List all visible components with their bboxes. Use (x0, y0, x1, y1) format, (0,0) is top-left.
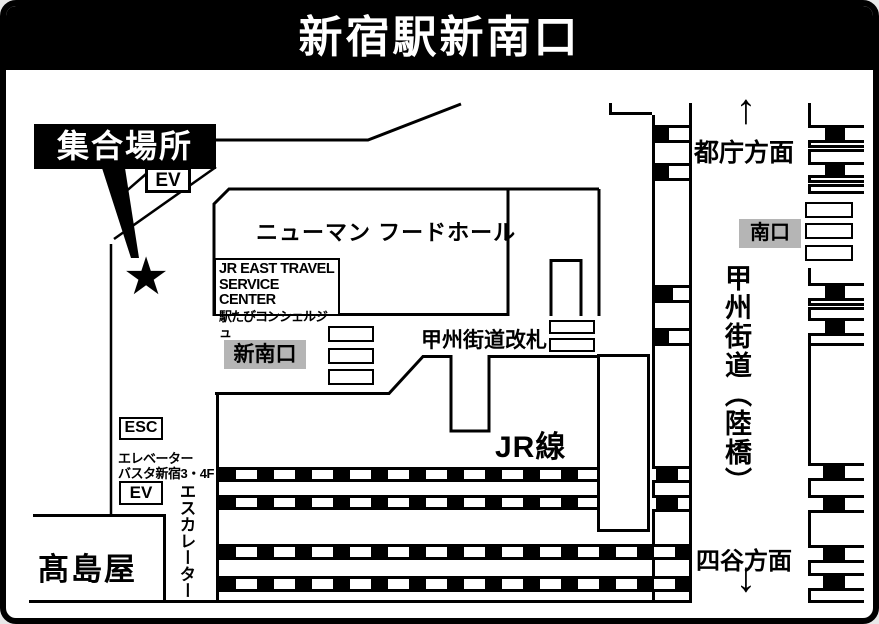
road-strip-segment (808, 283, 864, 301)
minami-exit-badge: 南口 (739, 219, 801, 248)
station-guide-map: 新宿駅新南口 集合場所 ★ EV ニューマン フードホール JR EAST TR… (0, 0, 879, 624)
overpass-rectangle (597, 354, 650, 532)
food-hall-label: ニューマン フードホール (256, 215, 516, 247)
road-strip-segment (652, 328, 689, 346)
road-strip-segment (808, 495, 864, 513)
title-bar: 新宿駅新南口 (6, 6, 873, 70)
meeting-place-label-box: 集合場所 (34, 124, 216, 169)
jr-track-band (219, 544, 689, 560)
road-strip-segment (808, 545, 864, 563)
road-strip-segment (808, 463, 864, 481)
ticket-gate (805, 223, 853, 239)
road-strip-segment (808, 318, 864, 336)
road-strip-segment (808, 303, 864, 310)
ticket-gate (328, 348, 374, 364)
road-strip-line (808, 343, 864, 346)
road-strip-segment (652, 125, 689, 143)
travel-center-line1: JR EAST TRAVEL (219, 262, 338, 278)
takashimaya-label: 髙島屋 (38, 544, 137, 589)
page-title: 新宿駅新南口 (6, 6, 873, 70)
meeting-point-star-icon: ★ (118, 246, 174, 308)
elevator-box-lower: EV (119, 481, 163, 505)
road-strip-line (808, 191, 864, 194)
ticket-gate (549, 338, 595, 352)
jr-line-label: JR線 (495, 422, 566, 466)
ticket-gate (328, 369, 374, 385)
travel-center-line3: 駅たびコンシェルジュ (219, 309, 338, 341)
escalator-vertical-label: エスカレーター (174, 483, 198, 605)
ticket-gate (805, 202, 853, 218)
road-strip-segment (652, 495, 689, 512)
road-strip-segment (808, 145, 864, 152)
koshu-kaido-gate-label: 甲州街道改札 (421, 324, 547, 354)
koshu-kaido-road-label: 甲州街道（陸橋） (717, 264, 756, 534)
road-strip-segment (808, 180, 864, 187)
ticket-gate (549, 320, 595, 334)
ticket-gate (805, 245, 853, 261)
jr-track-band (219, 467, 599, 482)
road-strip-segment (652, 285, 689, 303)
road-strip-segment (652, 163, 689, 181)
road-strip-segment (808, 162, 864, 178)
elevator-box-upper: EV (145, 167, 191, 193)
arrow-up-icon: ↑ (728, 86, 764, 132)
shin-minami-exit-badge: 新南口 (224, 340, 306, 369)
travel-service-center-box: JR EAST TRAVEL SERVICE CENTER 駅たびコンシェルジュ (214, 258, 340, 316)
tocho-direction-label: 都庁方面 (694, 133, 794, 169)
road-strip-segment (652, 466, 689, 483)
jr-track-band (219, 495, 599, 510)
busta-shinjuku-label: バスタ新宿3・4F (118, 463, 214, 482)
road-strip-segment (808, 573, 864, 591)
travel-center-line2: SERVICE CENTER (219, 278, 338, 309)
escalator-box: ESC (119, 417, 163, 440)
meeting-place-label: 集合場所 (34, 124, 216, 169)
jr-track-band (219, 576, 689, 592)
arrow-down-icon: ↓ (728, 554, 764, 600)
road-strip-segment (808, 125, 864, 143)
